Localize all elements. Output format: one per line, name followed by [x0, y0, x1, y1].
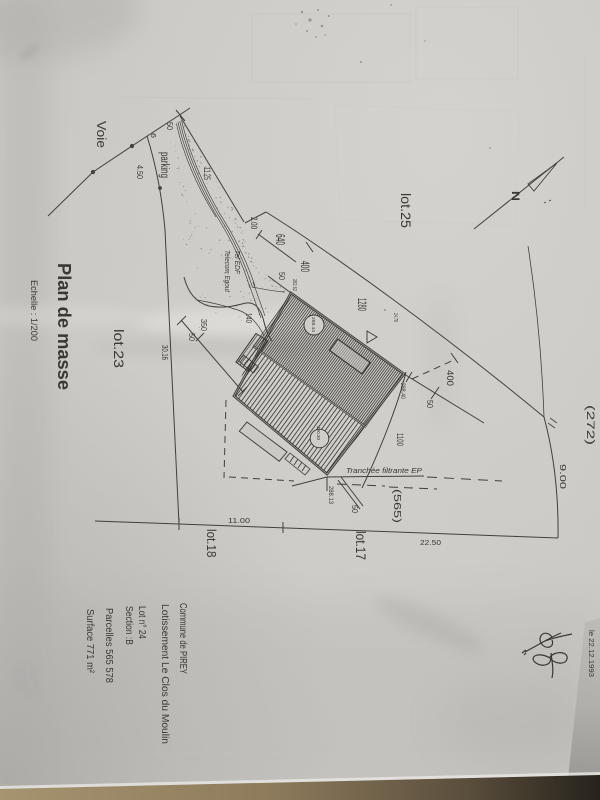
svg-text:Section :B: Section :B [123, 606, 134, 645]
svg-text:lot.17: lot.17 [353, 531, 368, 560]
svg-text:Parcelles 565 578: Parcelles 565 578 [103, 608, 114, 683]
svg-text:Lot n° 24: Lot n° 24 [136, 606, 147, 639]
svg-text:24.76: 24.76 [392, 313, 398, 322]
svg-text:11.25: 11.25 [202, 167, 212, 180]
svg-text:-288.40: -288.40 [399, 381, 405, 400]
svg-text:1100: 1100 [395, 433, 405, 446]
svg-text:le 22.12.1993: le 22.12.1993 [587, 630, 596, 677]
svg-text:Plan de masse: Plan de masse [54, 263, 74, 390]
svg-text:(272): (272) [584, 405, 596, 445]
svg-text:Commune de PIREY: Commune de PIREY [177, 603, 188, 674]
svg-text:lot.23: lot.23 [111, 329, 127, 368]
svg-text:50: 50 [350, 505, 359, 513]
svg-text:parking: parking [158, 152, 170, 178]
svg-text:22.50: 22.50 [420, 540, 441, 547]
svg-text:4.50: 4.50 [135, 165, 144, 179]
svg-text:Surface 771 m²: Surface 771 m² [84, 609, 95, 674]
svg-text:288.13: 288.13 [327, 486, 333, 505]
svg-text:2.00: 2.00 [249, 217, 259, 229]
svg-text:290.30: 290.30 [315, 426, 321, 440]
svg-text:Echelle : 1/200: Echelle : 1/200 [29, 280, 39, 341]
svg-text:1280: 1280 [355, 298, 369, 311]
svg-text:Voie: Voie [94, 121, 109, 148]
svg-text:282.62: 282.62 [291, 279, 297, 291]
svg-text:400: 400 [298, 261, 312, 272]
svg-text:Tranchée filtrante EP: Tranchée filtrante EP [346, 466, 422, 475]
svg-text:350: 350 [199, 319, 209, 331]
svg-text:Tel EDF: Tel EDF [233, 250, 240, 275]
svg-text:lot.25: lot.25 [398, 193, 414, 228]
svg-text:50: 50 [187, 333, 196, 341]
svg-text:9.00: 9.00 [558, 464, 568, 489]
svg-text:30.16: 30.16 [160, 345, 169, 360]
svg-text:lot.18: lot.18 [204, 529, 219, 558]
svg-text:288.44: 288.44 [310, 317, 316, 332]
svg-text:N: N [509, 191, 521, 201]
svg-text:140: 140 [244, 313, 254, 323]
svg-text:640: 640 [273, 234, 288, 245]
svg-text:11.00: 11.00 [228, 516, 250, 525]
svg-text:Lotissement Le Clos du Moulin: Lotissement Le Clos du Moulin [159, 604, 170, 744]
svg-text:50: 50 [277, 272, 286, 280]
svg-text:400: 400 [445, 370, 455, 386]
svg-text:50: 50 [425, 400, 434, 408]
svg-text:6: 6 [149, 133, 156, 138]
svg-text:(565): (565) [391, 489, 403, 523]
svg-text:50: 50 [165, 122, 174, 130]
svg-text:Telecom Egout: Telecom Egout [223, 250, 230, 293]
